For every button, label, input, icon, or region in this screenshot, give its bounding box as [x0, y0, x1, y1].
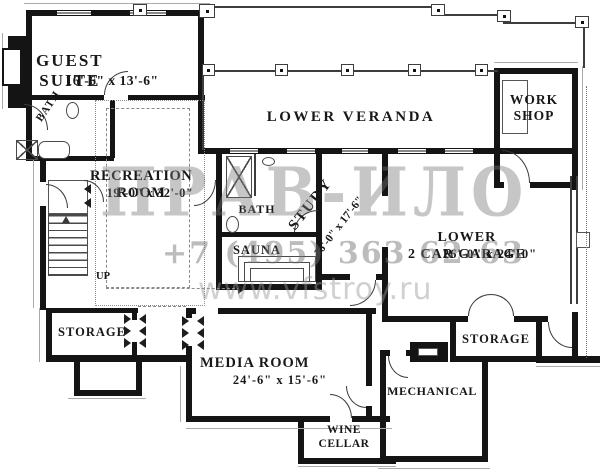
column-post: [408, 64, 421, 76]
opening-chevron-icon: [182, 316, 189, 326]
wall-line: [503, 22, 585, 24]
wall-line: [443, 14, 505, 16]
door-arc: [388, 356, 408, 378]
wall-segment: [218, 308, 376, 314]
column-post: [275, 64, 288, 76]
door-arc: [548, 322, 572, 348]
room-name: RECREATION ROOM: [90, 168, 192, 203]
wall-segment: [136, 362, 142, 396]
room-dims: 24'-6" x 15'-6": [200, 373, 360, 388]
window-marker: [230, 148, 258, 154]
outline-offset: [582, 66, 583, 190]
wall-segment: [376, 274, 388, 280]
driveway-dotted-line: [586, 86, 587, 358]
fixture-box: [576, 232, 590, 248]
window-marker: [342, 148, 368, 154]
room-name: LOWER 2 CAR GARAGE: [408, 229, 526, 263]
wall-segment: [482, 356, 488, 462]
outline-offset: [33, 160, 34, 308]
wall-segment: [216, 148, 222, 290]
wall-segment: [216, 284, 322, 290]
wall-segment: [26, 10, 205, 16]
opening-chevron-icon: [124, 314, 131, 324]
fixture-oval: [226, 216, 239, 233]
room-label-recreation: RECREATION ROOM 19'-0" x 32'-0": [90, 150, 210, 219]
column-post: [133, 4, 147, 16]
wall-segment: [46, 308, 138, 313]
wall-segment: [46, 355, 192, 362]
wall-segment: [382, 316, 468, 322]
column-post: [199, 4, 215, 18]
opening-chevron-icon: [139, 314, 146, 324]
staircase: [48, 214, 88, 276]
outline-offset: [68, 398, 146, 399]
closet-x-symbol: [226, 156, 252, 198]
wall-segment: [514, 316, 548, 322]
floor-plan: GUEST SUITE 16'-6" x 13'-6" BATH RECREAT…: [0, 0, 600, 474]
stairs-arrow-icon: [62, 216, 70, 223]
room-label-workshop: WORK SHOP: [500, 92, 568, 125]
column-post: [202, 64, 215, 76]
outline-offset: [180, 366, 181, 422]
wall-segment: [536, 356, 600, 363]
column-post: [497, 10, 511, 22]
fixture-oval: [262, 157, 275, 166]
room-name: MEDIA ROOM: [200, 355, 309, 373]
fixture-box: [418, 348, 438, 356]
opening-chevron-icon: [139, 326, 146, 336]
outline-offset: [298, 466, 396, 467]
room-label-mechanical: MECHANICAL: [380, 384, 484, 399]
stairs-up-label: UP: [90, 271, 116, 284]
opening-chevron-icon: [182, 328, 189, 338]
column-post: [431, 4, 445, 16]
wall-segment: [74, 390, 142, 396]
wall-segment: [450, 356, 542, 362]
wall-line: [583, 22, 585, 68]
opening-chevron-icon: [197, 316, 204, 326]
door-arc: [502, 150, 530, 183]
room-label-media: MEDIA ROOM 24'-6" x 15'-6": [200, 337, 360, 406]
outline-offset: [378, 468, 490, 469]
closet-x-symbol: [16, 140, 38, 160]
wall-segment: [494, 68, 578, 74]
door-arc: [491, 294, 514, 316]
room-label-storage-left: STORAGE: [50, 325, 134, 340]
wall-segment: [494, 70, 500, 188]
door-arc: [468, 294, 491, 316]
room-label-garage: LOWER 2 CAR GARAGE 26'-0" x 24'-0": [408, 212, 572, 279]
wall-segment: [382, 247, 388, 319]
column-post: [341, 64, 354, 76]
wall-line: [254, 152, 256, 196]
column-post: [575, 16, 589, 28]
wall-segment: [366, 308, 372, 386]
door-arc: [350, 280, 376, 306]
outline-offset: [24, 3, 210, 4]
wall-segment: [186, 346, 192, 422]
bathtub: [38, 141, 70, 159]
window-marker: [57, 10, 91, 16]
room-label-storage-right: STORAGE: [452, 332, 540, 347]
wall-segment: [186, 308, 196, 314]
wall-segment: [572, 312, 578, 362]
wall-segment: [132, 342, 137, 358]
dashed-line: [138, 306, 186, 307]
wall-segment: [132, 308, 137, 320]
wall-line: [213, 6, 445, 8]
bay-window: [2, 48, 22, 86]
outline-offset: [536, 366, 600, 367]
room-label-wine-cellar: WINE CELLAR: [302, 423, 386, 451]
column-post: [475, 64, 488, 76]
wall-segment: [40, 206, 46, 310]
wall-segment: [572, 68, 578, 190]
outline-offset: [494, 62, 578, 63]
wall-segment: [380, 456, 488, 462]
opening-chevron-icon: [238, 284, 245, 294]
window-marker: [398, 148, 426, 154]
outline-offset: [39, 308, 40, 362]
wall-segment: [40, 160, 46, 182]
opening-chevron-icon: [139, 338, 146, 348]
dashed-line: [106, 288, 240, 289]
room-label-veranda: LOWER VERANDA: [238, 108, 464, 126]
wall-segment: [186, 416, 330, 422]
opening-chevron-icon: [182, 340, 189, 350]
window-marker: [445, 148, 473, 154]
